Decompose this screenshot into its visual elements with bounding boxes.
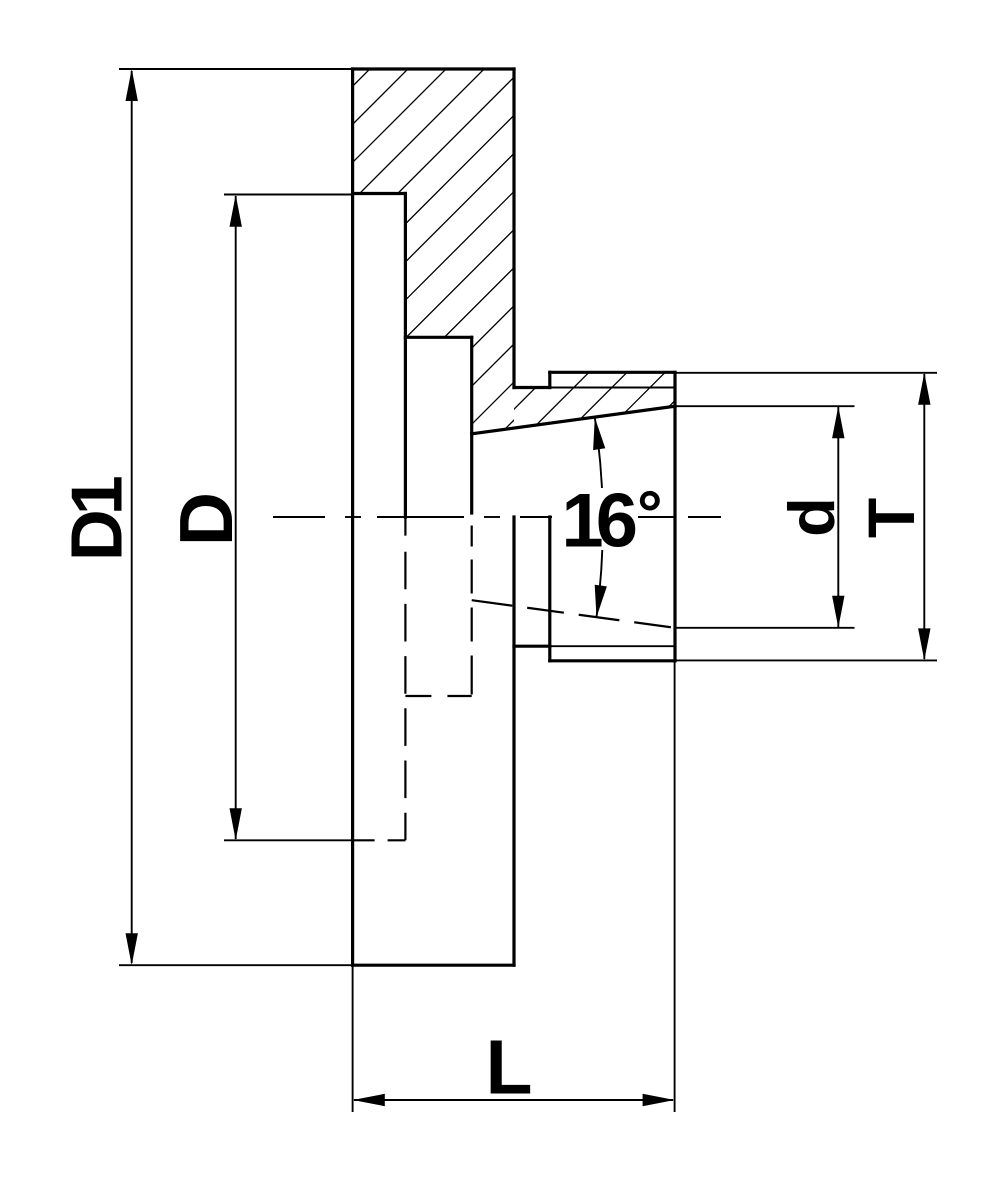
svg-text:D1: D1: [57, 476, 137, 561]
svg-text:d: d: [775, 497, 848, 537]
svg-text:L: L: [485, 1024, 532, 1110]
svg-text:T: T: [854, 498, 928, 538]
svg-text:D: D: [164, 492, 248, 546]
